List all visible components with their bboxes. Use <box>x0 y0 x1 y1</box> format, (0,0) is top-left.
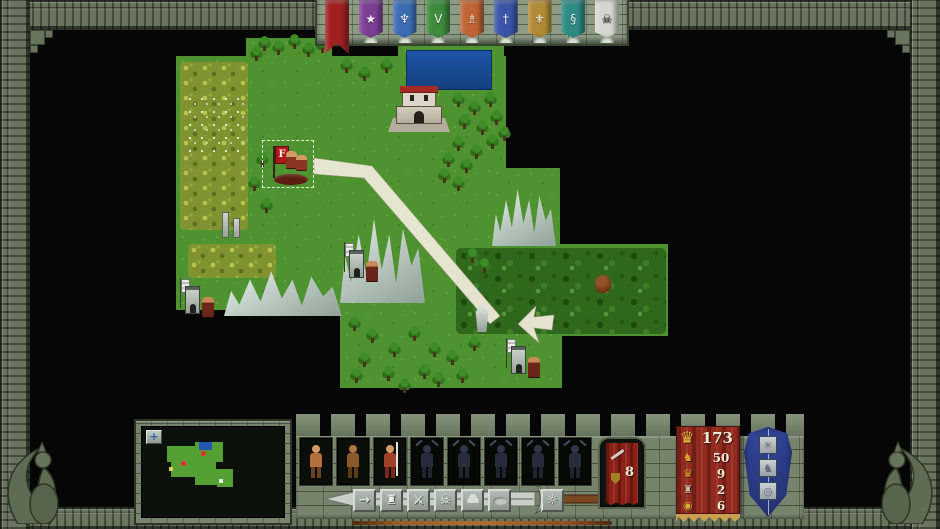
attack-button[interactable]: ⚔ <box>407 489 430 512</box>
game-screen: F ★♆V♗†⚜§☠ + →♜⚔☠☼ <box>0 0 940 529</box>
castle-button[interactable]: ♜ <box>380 489 403 512</box>
tree <box>248 176 261 191</box>
figure-body <box>421 453 433 467</box>
shadow-figure <box>417 445 437 481</box>
kingdom-stats-banner: ♛ 173 ♞50♛9♜2◉6 <box>676 426 740 514</box>
horn-icon <box>563 440 570 447</box>
tree <box>468 100 481 115</box>
figure-head <box>534 445 542 453</box>
horn-icon <box>579 440 586 447</box>
defend-button[interactable] <box>488 489 511 512</box>
castle-window <box>410 95 414 101</box>
tree <box>382 366 395 381</box>
crown-icon: ♛ <box>680 428 694 447</box>
lake-water <box>406 50 492 90</box>
tree <box>408 326 421 341</box>
sigil-0[interactable]: ✳ <box>759 436 777 454</box>
beast-figure <box>595 275 611 293</box>
move-button[interactable]: → <box>353 489 376 512</box>
tree <box>358 352 371 367</box>
combat-banner: 8 <box>606 443 638 505</box>
army-slot-barbarian[interactable] <box>299 437 333 486</box>
frame-corner-step <box>45 30 53 38</box>
ruined-tower <box>220 210 244 240</box>
army-slot-empty-2[interactable] <box>447 437 481 486</box>
horn-icon <box>468 440 475 447</box>
tree <box>380 58 393 73</box>
horn-icon <box>542 440 549 447</box>
shadow-figure <box>528 445 548 481</box>
banner-green-chevron-emblem-icon: V <box>434 13 442 25</box>
wild-beast[interactable] <box>594 274 612 294</box>
gargoyle-statue-left <box>4 438 66 524</box>
tree <box>272 40 285 55</box>
figure-head <box>386 445 394 453</box>
shadow-figure <box>491 445 511 481</box>
figure-head <box>571 445 579 453</box>
tree <box>452 176 465 191</box>
castle-gate <box>414 111 424 123</box>
figure-head <box>497 445 505 453</box>
banner-navy-cross-emblem-icon: † <box>503 13 509 25</box>
sigil-icon: ♞ <box>760 460 776 476</box>
staff-decoration <box>352 521 612 525</box>
ruin-pillar <box>222 212 229 238</box>
stats-row: ◉6 <box>679 499 737 515</box>
banner-purple-star[interactable]: ★ <box>359 0 383 38</box>
banner-gold-eagle[interactable]: ⚜ <box>528 0 552 38</box>
ruin-pillar <box>233 218 240 238</box>
sigil-icon: ✳ <box>760 437 776 453</box>
defender-figure <box>202 297 214 317</box>
stats-row: ♜2 <box>679 483 737 499</box>
sigil-1[interactable]: ♞ <box>759 459 777 477</box>
beastman-figure <box>343 445 363 481</box>
tree <box>484 92 497 107</box>
army-slot-empty-4[interactable] <box>521 437 555 486</box>
figure-legs <box>422 467 432 478</box>
tree <box>452 136 465 151</box>
selected-hero-army[interactable]: F <box>264 142 312 186</box>
stats-rows: ♞50♛9♜2◉6 <box>679 451 737 515</box>
sigil-2[interactable]: ◎ <box>759 482 777 500</box>
tree <box>458 114 471 129</box>
shadow-figure <box>454 445 474 481</box>
tree <box>456 368 469 383</box>
figure-head <box>423 445 431 453</box>
spearman-figure <box>380 445 400 481</box>
move-button-icon: → <box>355 491 374 510</box>
banner-orange-keeper-slot: ♗ <box>460 0 484 44</box>
horn-icon <box>431 440 438 447</box>
castle-button-icon: ♜ <box>382 491 401 510</box>
figure-body <box>384 453 396 467</box>
tree <box>388 342 401 357</box>
tree <box>460 158 473 173</box>
tree <box>490 110 503 125</box>
tree <box>358 66 371 81</box>
combat-value: 8 <box>625 465 634 480</box>
lamp-button-icon: ☼ <box>543 491 562 510</box>
horn-icon <box>489 440 496 447</box>
gargoyle-statue-right <box>874 438 936 524</box>
army-slot-empty-1[interactable] <box>410 437 444 486</box>
banner-gold-eagle-slot: ⚜ <box>528 0 552 44</box>
banner-red-crusader-slot <box>325 0 349 44</box>
tree <box>478 258 491 273</box>
tree <box>468 336 481 351</box>
stats-value: 50 <box>709 451 733 465</box>
figure-body <box>495 453 507 467</box>
army-slot-row <box>299 437 595 486</box>
tree <box>302 42 315 57</box>
tower-door <box>516 364 522 373</box>
banner-teal-serpent[interactable]: § <box>561 0 585 38</box>
items-button-icon <box>467 494 479 506</box>
tree <box>418 364 431 379</box>
figure-body <box>458 453 470 467</box>
horn-icon <box>505 440 512 447</box>
tree <box>442 152 455 167</box>
minimap-panel: + <box>134 419 292 525</box>
figure-legs <box>348 467 358 478</box>
figure-legs <box>385 467 395 478</box>
stats-icon-2: ♜ <box>683 483 693 496</box>
banner-purple-star-slot: ★ <box>359 0 383 44</box>
stats-icon-0: ♞ <box>683 451 693 464</box>
banner-purple-star-emblem-icon: ★ <box>365 13 376 25</box>
sigil-icon: ◎ <box>760 483 776 499</box>
army-slot-spearman[interactable] <box>373 437 407 486</box>
shadow-figure <box>565 445 585 481</box>
defender-figure <box>528 357 540 377</box>
sword-icon <box>610 449 624 460</box>
stats-icon-3: ◉ <box>683 499 693 512</box>
banner-gold-eagle-emblem-icon: ⚜ <box>534 13 545 25</box>
items-button[interactable] <box>461 489 484 512</box>
minimap-zoom-button[interactable]: + <box>146 430 162 444</box>
player-banner-bar: ★♆V♗†⚜§☠ <box>315 0 629 46</box>
banner-blue-halberd[interactable]: ♆ <box>393 0 417 38</box>
figure-head <box>460 445 468 453</box>
tree <box>350 368 363 383</box>
figure-head <box>312 445 320 453</box>
minimap-flag-dot <box>201 451 206 456</box>
tree <box>432 372 445 387</box>
disband-button[interactable]: ☠ <box>434 489 457 512</box>
player-banner-row: ★♆V♗†⚜§☠ <box>325 0 619 44</box>
tree <box>366 328 379 343</box>
figure-head <box>349 445 357 453</box>
figure-legs <box>496 467 506 478</box>
castle-keep <box>402 91 436 107</box>
banner-white-skull[interactable]: ☠ <box>595 0 619 38</box>
castle-roof <box>400 86 438 92</box>
garrison-tower-c[interactable] <box>504 338 546 380</box>
disband-button-icon: ☠ <box>436 491 455 510</box>
autumn-forest <box>188 244 276 278</box>
tree <box>438 168 451 183</box>
horn-icon <box>452 440 459 447</box>
frame-corner-step <box>902 45 910 53</box>
tree <box>470 144 483 159</box>
attack-button-icon: ⚔ <box>409 491 428 510</box>
tree <box>498 126 511 141</box>
banner-teal-serpent-emblem-icon: § <box>570 13 576 25</box>
castle-window <box>424 95 428 101</box>
army-slot-empty-3[interactable] <box>484 437 518 486</box>
gold-amount: 173 <box>702 429 733 447</box>
banner-green-chevron-slot: V <box>426 0 450 44</box>
tower-door <box>354 268 360 277</box>
tree <box>340 58 353 73</box>
frame-corner-step <box>895 30 910 45</box>
minimap-flag-dot <box>181 461 186 466</box>
defend-button-icon <box>493 497 507 505</box>
figure-legs <box>459 467 469 478</box>
birch-grove <box>186 94 244 152</box>
selection-marquee <box>262 140 314 188</box>
figure-legs <box>311 467 321 478</box>
minimap-dot <box>169 467 173 471</box>
barbarian-figure <box>306 445 326 481</box>
stats-value: 2 <box>709 483 733 497</box>
garrison-tower-b[interactable] <box>178 278 220 320</box>
banner-white-skull-emblem-icon: ☠ <box>602 13 613 25</box>
tree <box>476 120 489 135</box>
stats-row: ♛9 <box>679 467 737 483</box>
castle[interactable] <box>388 86 450 132</box>
tree <box>288 34 301 49</box>
figure-legs <box>570 467 580 478</box>
defender-figure <box>366 261 378 281</box>
wraith-figure <box>472 304 492 332</box>
tree <box>446 350 459 365</box>
figure-legs <box>533 467 543 478</box>
stats-row: ♞50 <box>679 451 737 467</box>
army-slot-beastman[interactable] <box>336 437 370 486</box>
lamp-button[interactable]: ☼ <box>541 489 564 512</box>
frame-corner-step <box>30 45 38 53</box>
banner-teal-serpent-slot: § <box>561 0 585 44</box>
banner-green-chevron[interactable]: V <box>426 0 450 38</box>
action-button-row: →♜⚔☠☼ <box>353 489 564 513</box>
figure-body <box>532 453 544 467</box>
banner-white-skull-slot: ☠ <box>595 0 619 44</box>
tree <box>398 378 411 393</box>
minimap-dot <box>219 479 223 483</box>
tree <box>260 198 273 213</box>
wraith-stack[interactable] <box>470 304 494 334</box>
frame-corner-step <box>30 30 45 45</box>
tree <box>428 342 441 357</box>
army-slot-empty-5[interactable] <box>558 437 592 486</box>
stats-icon-1: ♛ <box>683 467 693 480</box>
banner-orange-keeper-emblem-icon: ♗ <box>467 13 478 25</box>
tree <box>348 316 361 331</box>
banner-orange-keeper[interactable]: ♗ <box>460 0 484 38</box>
tree <box>250 46 263 61</box>
figure-body <box>569 453 581 467</box>
garrison-tower-a[interactable] <box>342 242 384 284</box>
frame-corner-step <box>887 30 895 38</box>
spear-icon <box>396 442 398 476</box>
tree <box>452 92 465 107</box>
banner-navy-cross[interactable]: † <box>494 0 518 38</box>
horn-icon <box>526 440 533 447</box>
banner-navy-cross-slot: † <box>494 0 518 44</box>
minimap-water <box>199 442 212 450</box>
shield-icon <box>611 473 620 484</box>
figure-body <box>347 453 359 467</box>
stats-value: 6 <box>709 499 733 513</box>
banner-red-crusader[interactable] <box>325 0 349 54</box>
banner-blue-halberd-emblem-icon: ♆ <box>399 13 410 25</box>
horn-icon <box>415 440 422 447</box>
tower-door <box>190 304 196 313</box>
minimap-screen[interactable]: + <box>141 426 285 518</box>
figure-body <box>310 453 322 467</box>
banner-blue-halberd-slot: ♆ <box>393 0 417 44</box>
stats-value: 9 <box>709 467 733 481</box>
